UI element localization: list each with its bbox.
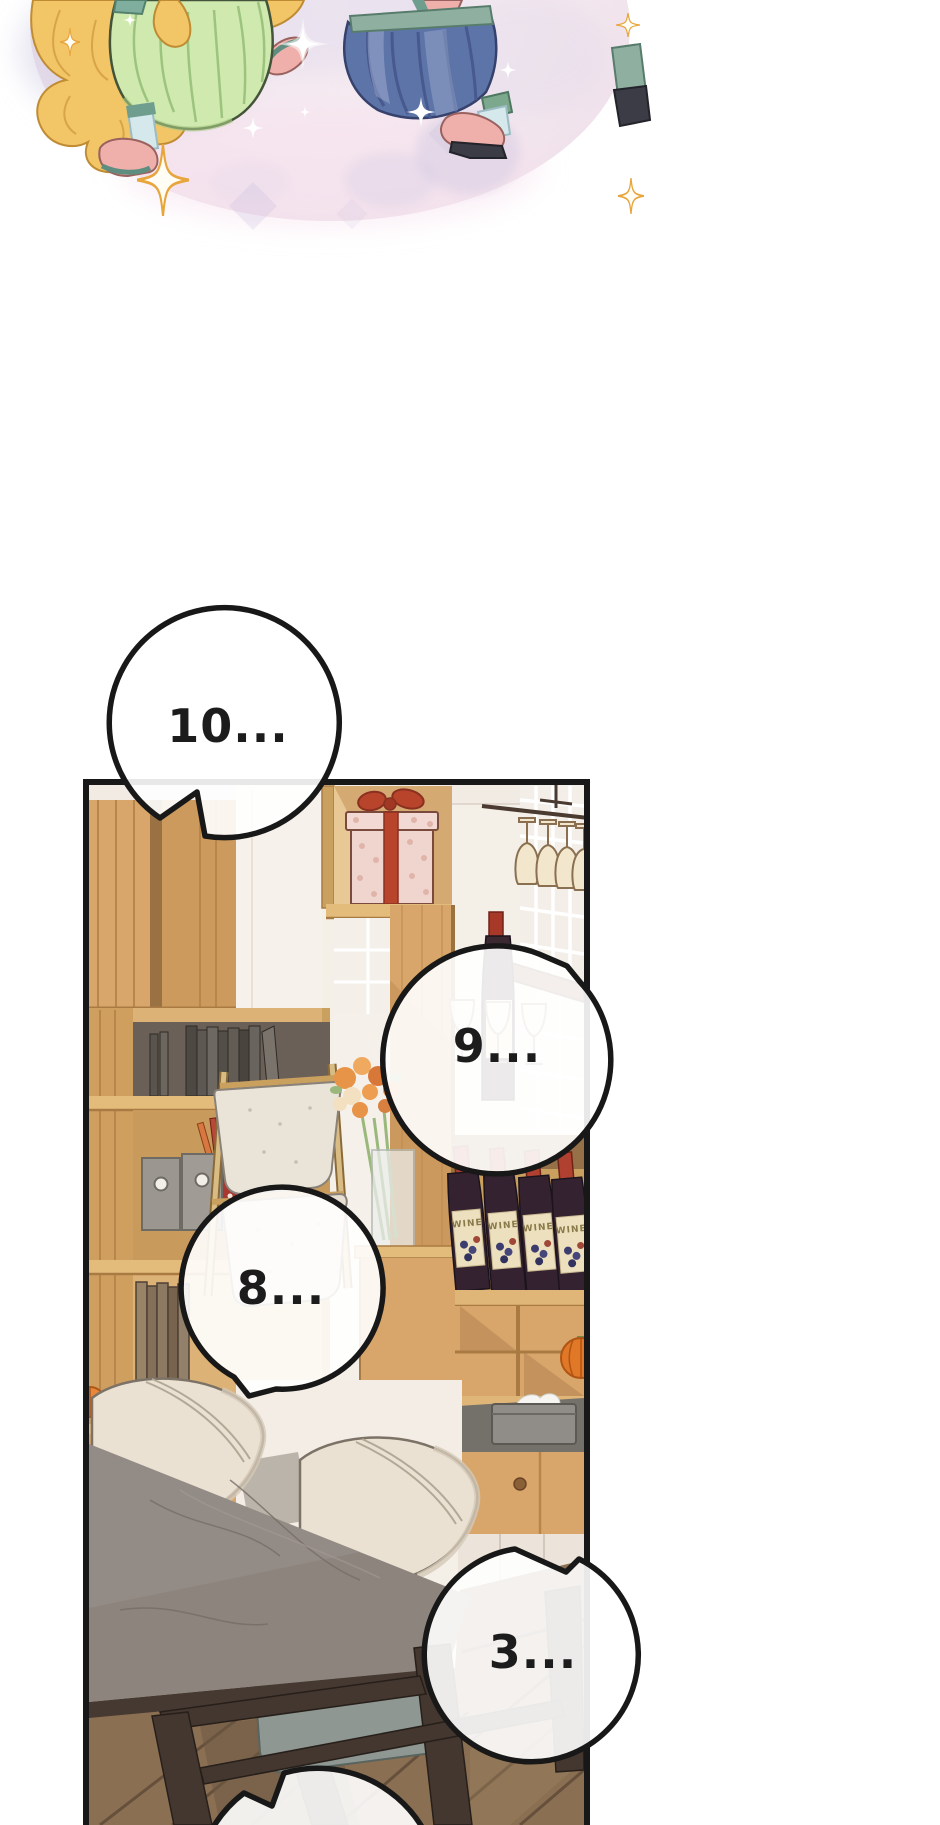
comic-artwork: WINE WINE WINE (0, 0, 940, 1825)
comic-page: WINE WINE WINE (0, 0, 940, 1825)
countdown-3: 3... (489, 1625, 577, 1679)
glass-vase (372, 1150, 414, 1250)
teal-sash (114, 0, 146, 14)
fabric-basket (214, 1082, 340, 1194)
intro-illustration (20, 0, 650, 230)
countdown-9: 9... (453, 1019, 541, 1073)
dark-shoe (614, 86, 650, 126)
countdown-8: 8... (237, 1261, 325, 1315)
countdown-10: 10... (167, 699, 288, 753)
